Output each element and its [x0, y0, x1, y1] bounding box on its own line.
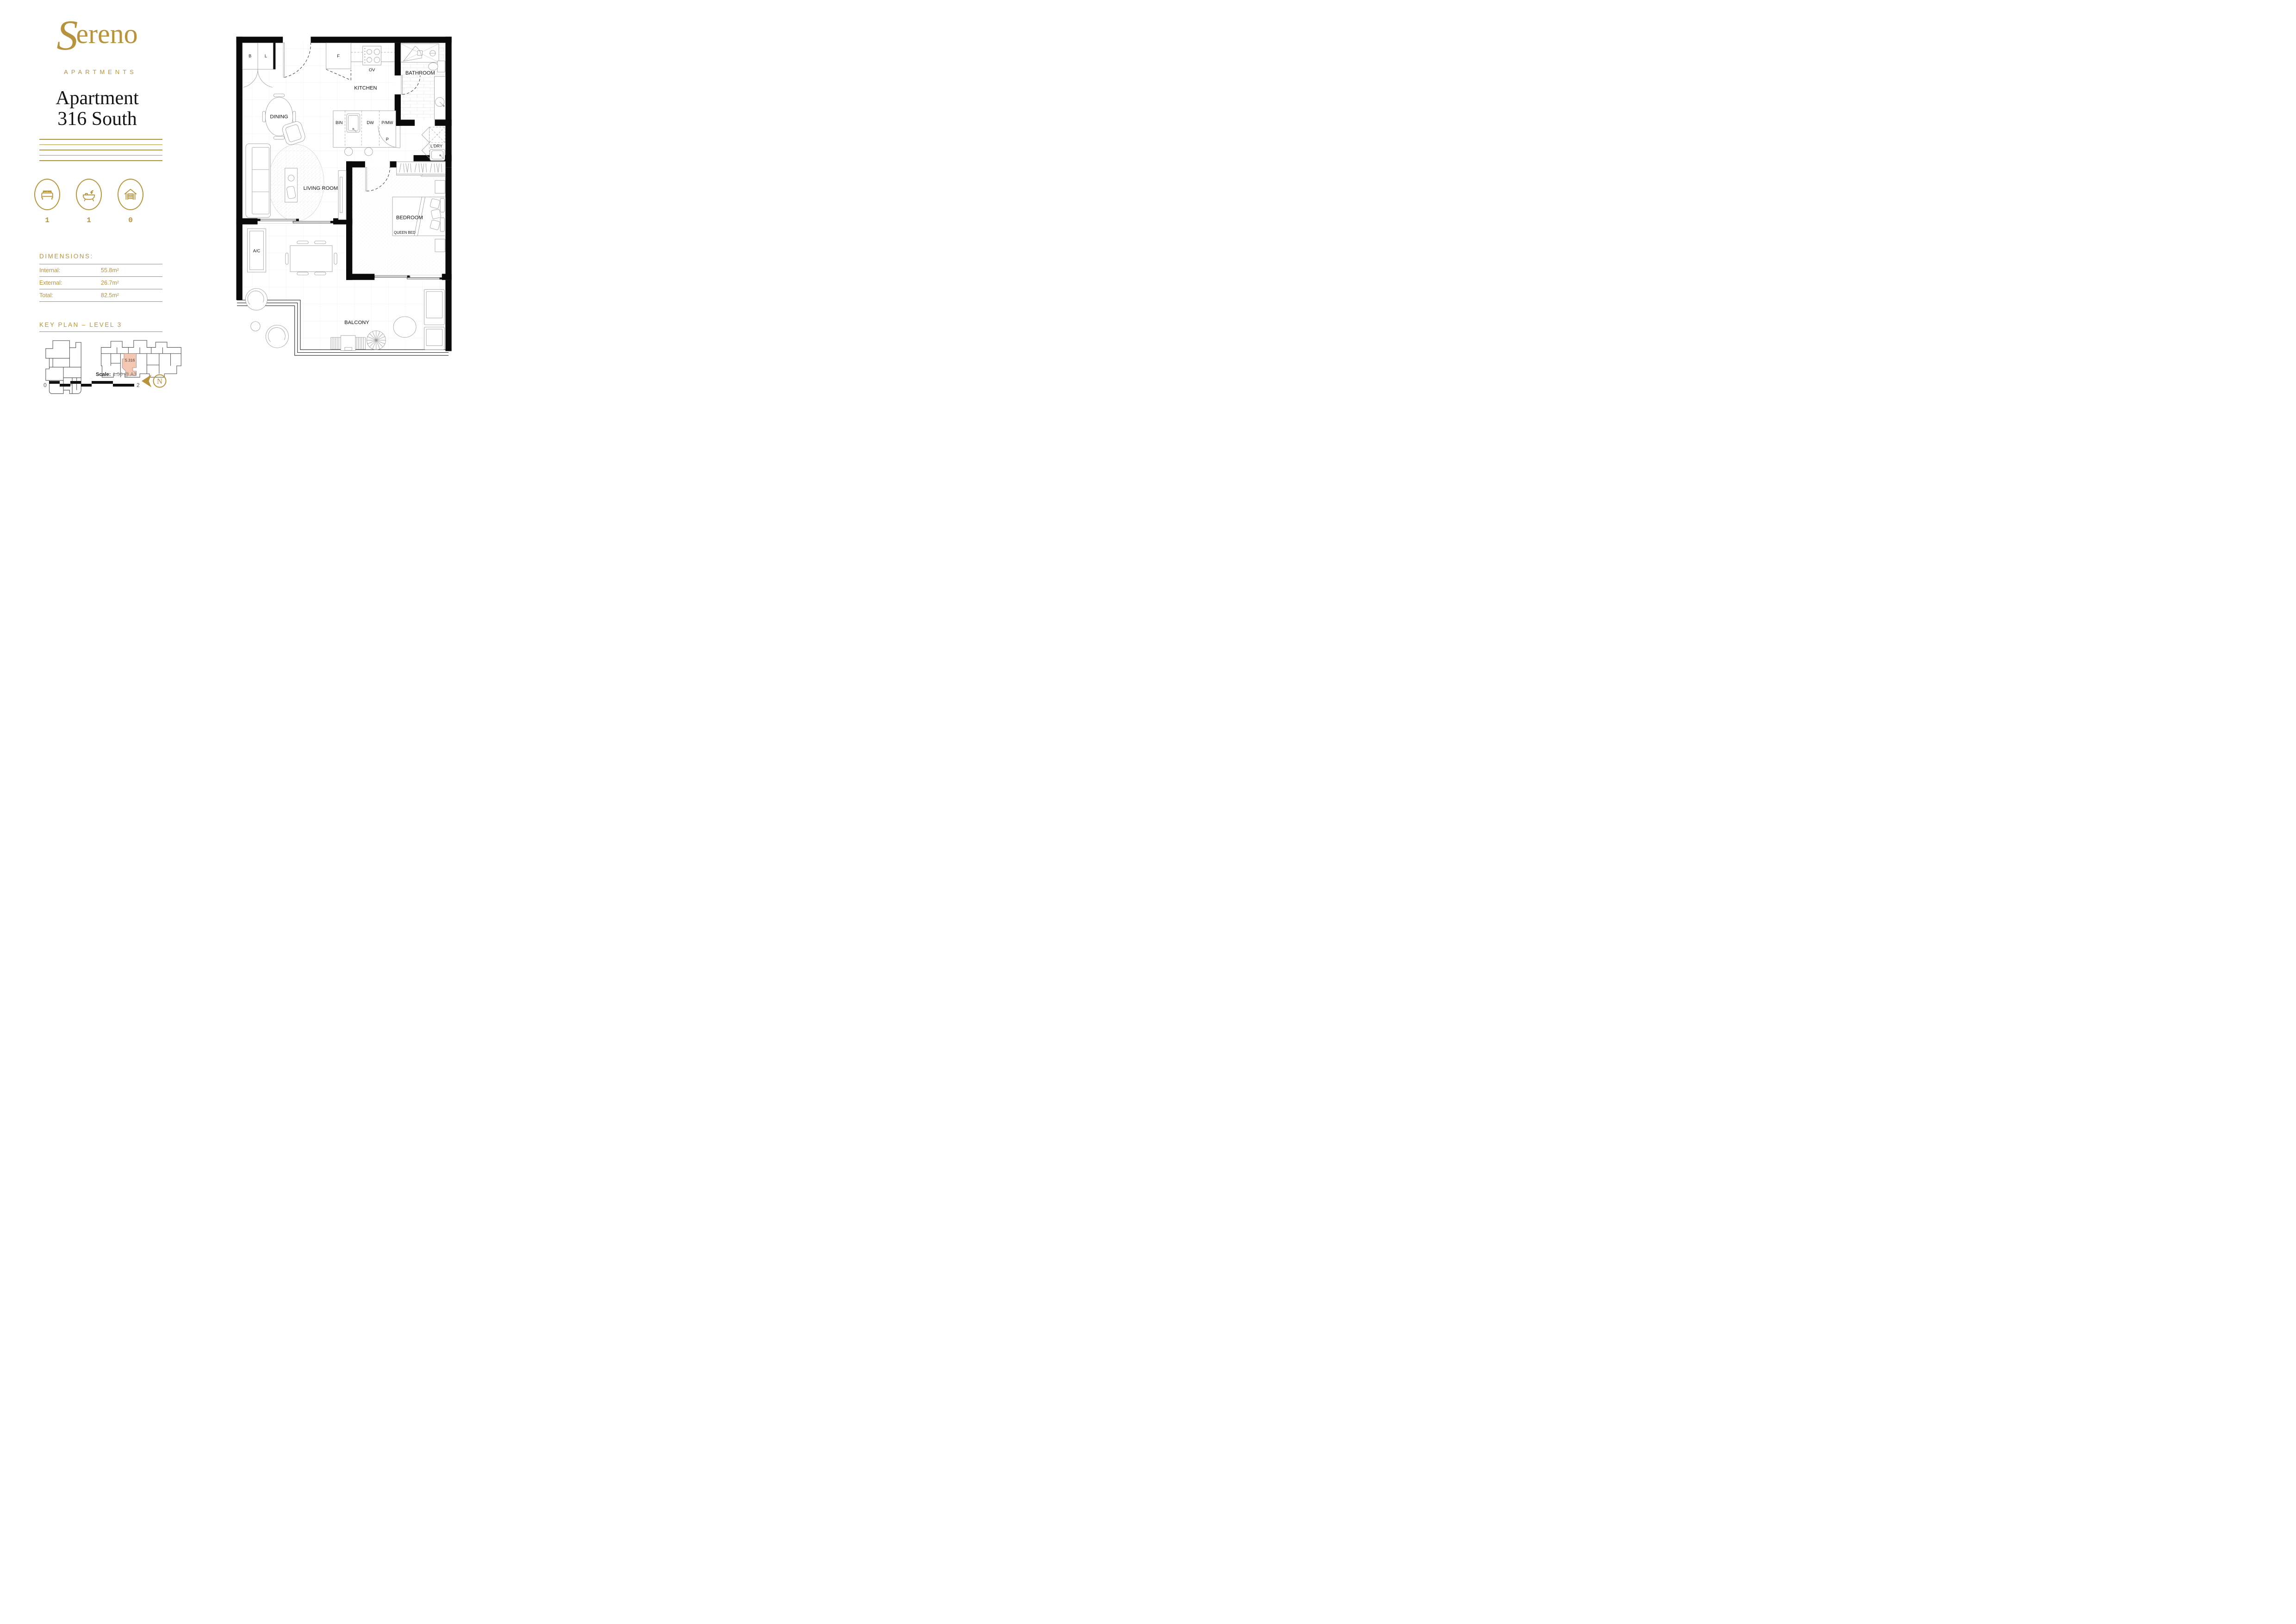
north-arrow-icon	[142, 375, 151, 387]
label-pantry: P	[386, 137, 389, 142]
bedside-table	[435, 181, 445, 194]
scale-bar-start: 0	[44, 382, 47, 388]
bedroom-window	[407, 278, 442, 279]
scale-text: Scale:1:50 @ A3	[45, 372, 137, 377]
bedroom-door-leaf	[366, 168, 367, 191]
room-label-living: LIVING ROOM	[303, 186, 338, 191]
logo-wordmark: ereno	[76, 19, 137, 49]
dimension-value: 55.8m²	[101, 267, 119, 274]
outdoor-table	[290, 246, 332, 272]
scale-label: Scale:	[96, 372, 111, 377]
apartment-title: Apartment 316 South	[19, 88, 176, 130]
logo-tagline: APARTMENTS	[28, 69, 170, 75]
toilet	[437, 61, 445, 72]
room-label-dining: DINING	[270, 114, 288, 119]
dimension-row-external: External: 26.7m²	[39, 276, 162, 289]
sliding-door-panel	[293, 221, 333, 223]
floor-plan: B L F OV KITCHEN DINING BIN DW P/MW P LI…	[235, 31, 457, 362]
logo-initial: S	[56, 12, 76, 59]
dimensions-section: DIMENSIONS: Internal: 55.8m² External: 2…	[39, 253, 162, 302]
kitchen-island	[333, 111, 396, 147]
label-linen-cupboard: L	[265, 54, 267, 58]
scale-bar: 0 2	[43, 379, 142, 390]
side-table	[251, 322, 260, 331]
stat-value-garages: 0	[114, 216, 147, 225]
room-label-bedroom: BEDROOM	[396, 215, 423, 221]
bedside-table	[435, 239, 445, 252]
entry-door-leaf	[283, 43, 285, 78]
dimension-label: External:	[39, 280, 101, 286]
room-label-kitchen: KITCHEN	[354, 86, 377, 91]
brand-logo: Sereno	[28, 14, 167, 56]
dimension-value: 26.7m²	[101, 280, 119, 286]
label-queen-bed: QUEEN BED	[394, 231, 416, 235]
vanity	[434, 76, 445, 119]
apartment-title-line2: 316 South	[19, 109, 176, 130]
sliding-door-panel	[258, 219, 299, 221]
scale-bar-segments	[49, 381, 134, 387]
label-oven: OV	[369, 68, 375, 72]
dimension-label: Internal:	[39, 267, 101, 274]
bed-icon	[34, 179, 60, 210]
label-dishwasher: DW	[367, 120, 374, 125]
lounge-chair	[245, 288, 267, 310]
garage-icon	[118, 179, 143, 210]
north-compass: N	[139, 373, 168, 389]
bathroom-door-leaf	[401, 75, 403, 94]
room-label-laundry: L'DRY	[430, 144, 442, 148]
north-label: N	[157, 377, 162, 386]
stat-bathrooms: 1	[72, 179, 106, 225]
dimension-row-total: Total: 82.5m²	[39, 289, 162, 301]
dimension-row-internal: Internal: 55.8m²	[39, 264, 162, 276]
apartment-title-line1: Apartment	[19, 88, 176, 109]
dimensions-heading: DIMENSIONS:	[39, 253, 162, 260]
label-bin: BIN	[336, 120, 342, 125]
label-pantry-microwave: P/MW	[381, 120, 393, 125]
keyplan-unit-label: S.316	[124, 358, 135, 362]
bath-icon	[76, 179, 102, 210]
stat-value-bathrooms: 1	[72, 216, 106, 225]
scale-value: 1:50 @ A3	[112, 372, 137, 377]
brochure-page: Sereno APARTMENTS Apartment 316 South 1 …	[0, 0, 574, 406]
bedroom-window	[374, 276, 410, 277]
label-ac: A/C	[253, 249, 261, 253]
stat-value-bedrooms: 1	[31, 216, 64, 225]
room-label-balcony: BALCONY	[344, 320, 369, 325]
stats-row: 1 1 0	[19, 179, 158, 225]
room-label-bathroom: BATHROOM	[405, 70, 435, 76]
dimension-label: Total:	[39, 292, 101, 299]
dimension-value: 82.5m²	[101, 292, 119, 299]
divider-lines	[39, 139, 162, 166]
label-broom-cupboard: B	[249, 54, 251, 58]
keyplan-heading: KEY PLAN – LEVEL 3	[39, 321, 162, 332]
stat-bedrooms: 1	[31, 179, 64, 225]
round-table	[393, 317, 416, 337]
label-fridge: F	[337, 54, 340, 58]
stat-garages: 0	[114, 179, 147, 225]
dimensions-table: Internal: 55.8m² External: 26.7m² Total:…	[39, 264, 162, 302]
